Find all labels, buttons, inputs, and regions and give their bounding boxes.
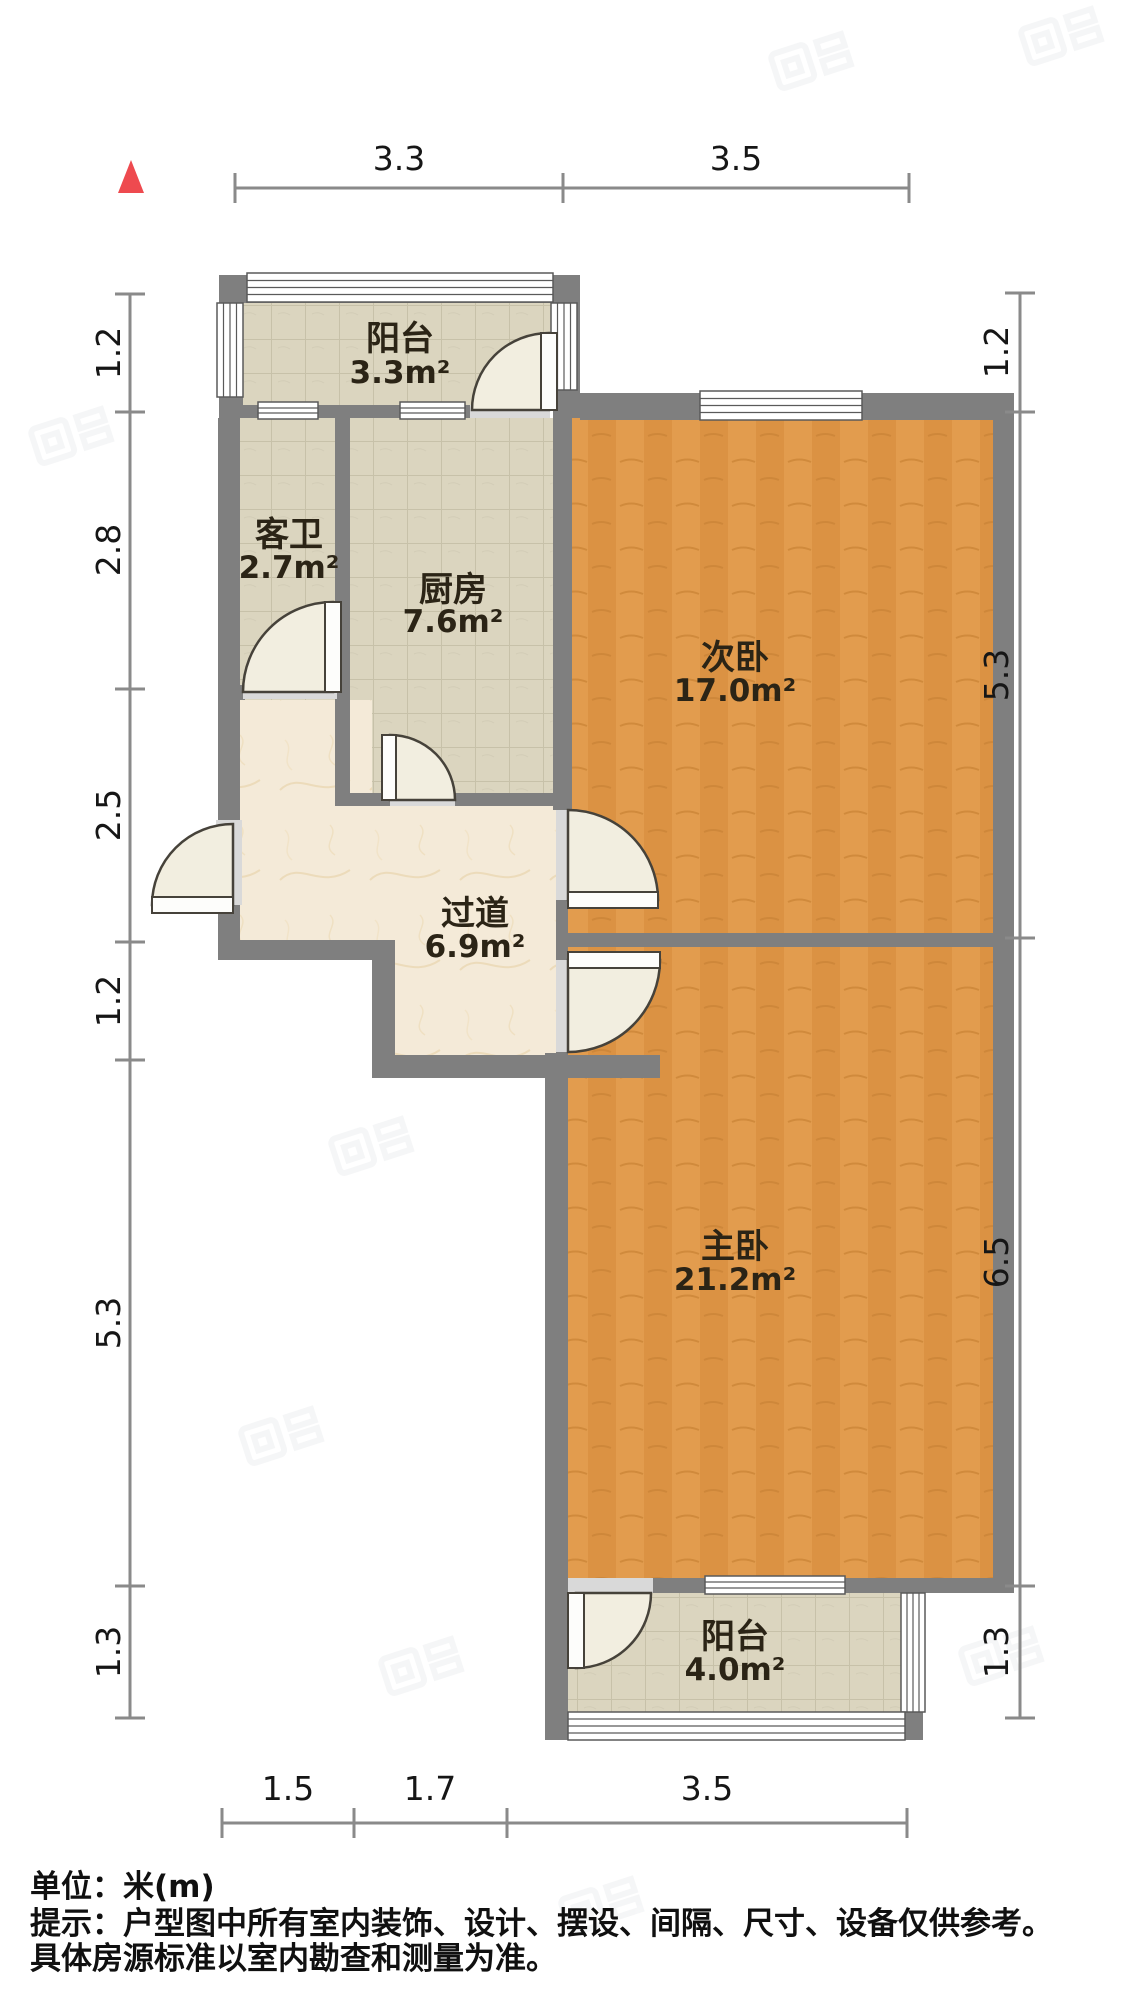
north-arrow-icon	[118, 160, 144, 193]
room-area-bedroom2: 17.0m²	[674, 673, 796, 709]
dim-left-0: 1.2	[89, 327, 128, 379]
dim-left-5: 1.3	[89, 1626, 128, 1678]
dim-left-3: 1.2	[89, 975, 128, 1027]
room-label-hallway: 过道	[441, 894, 509, 934]
room-label-bedroom2: 次卧	[701, 638, 769, 678]
room-area-hallway: 6.9m²	[425, 929, 526, 965]
dim-right-0: 1.2	[977, 326, 1016, 378]
wall	[545, 1053, 568, 1740]
dim-bottom-0: 1.5	[262, 1769, 314, 1808]
footer-tip-line2: 具体房源标准以室内勘查和测量为准。	[30, 1941, 557, 1977]
threshold	[556, 960, 568, 1052]
room-area-balcony-bottom: 4.0m²	[685, 1652, 786, 1688]
room-area-bathroom: 2.7m²	[239, 550, 340, 586]
dim-left-4: 5.3	[89, 1297, 128, 1349]
footer: 单位：米(m) 提示：户型图中所有室内装饰、设计、摆设、间隔、尺寸、设备仅供参考…	[30, 1869, 1053, 1977]
dim-bottom-2: 3.5	[681, 1769, 733, 1808]
window	[400, 402, 465, 419]
room-area-bedroom1: 21.2m²	[674, 1262, 796, 1298]
dim-top-0: 3.3	[373, 139, 425, 178]
window	[705, 1576, 845, 1594]
wall	[556, 900, 568, 960]
dim-top-1: 3.5	[710, 139, 762, 178]
window	[700, 391, 862, 420]
room-area-balcony-top: 3.3m²	[350, 355, 451, 391]
window	[247, 273, 553, 302]
room-label-bedroom1: 主卧	[701, 1227, 769, 1267]
door-entrance	[152, 824, 233, 913]
room-area-kitchen: 7.6m²	[403, 604, 504, 640]
window	[568, 1712, 905, 1740]
wall	[553, 418, 572, 810]
dim-left-1: 2.8	[89, 524, 128, 576]
wall	[993, 393, 1014, 1593]
wall	[218, 418, 240, 820]
threshold	[556, 810, 568, 900]
dim-left-2: 2.5	[89, 789, 128, 841]
window	[217, 303, 243, 397]
room-label-balcony-bottom: 阳台	[701, 1617, 769, 1657]
wall	[455, 793, 556, 806]
footer-unit-label: 单位：米(m)	[30, 1869, 215, 1905]
dim-bottom-1: 1.7	[404, 1769, 456, 1808]
wall	[372, 1055, 660, 1078]
footer-tip-line1: 提示：户型图中所有室内装饰、设计、摆设、间隔、尺寸、设备仅供参考。	[30, 1906, 1053, 1942]
wall	[218, 940, 395, 960]
room-label-balcony-top: 阳台	[366, 319, 434, 359]
dim-right-2: 6.5	[977, 1236, 1016, 1288]
dimension-bottom: 1.5 1.7 3.5	[222, 1769, 907, 1838]
floor-plan-canvas: 阳台 3.3m² 客卫 2.7m² 厨房 7.6m² 次卧 17.0m² 过道 …	[0, 0, 1144, 2014]
wall	[556, 933, 1014, 947]
window	[901, 1593, 925, 1712]
window	[258, 402, 318, 419]
wall	[317, 405, 402, 418]
room-label-bathroom: 客卫	[255, 515, 323, 555]
threshold	[568, 1578, 653, 1593]
dimension-left: 1.2 2.8 2.5 1.2 5.3 1.3	[89, 294, 145, 1718]
dim-right-1: 5.3	[977, 649, 1016, 701]
dimension-top: 3.3 3.5	[235, 139, 909, 203]
dim-right-3: 1.3	[977, 1626, 1016, 1678]
